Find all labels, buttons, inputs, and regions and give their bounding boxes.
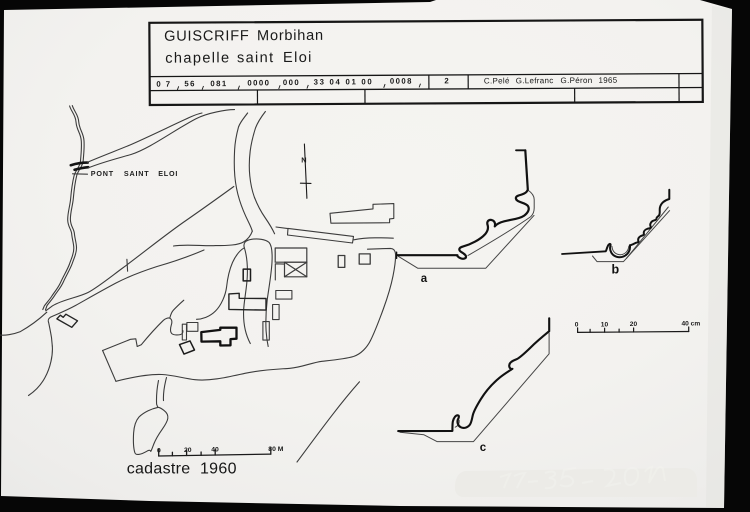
svg-text:40 cm: 40 cm	[682, 321, 701, 328]
svg-text:20: 20	[184, 447, 192, 454]
svg-text:ELOI: ELOI	[158, 169, 178, 178]
svg-text:33 04 01 00: 33 04 01 00	[314, 77, 374, 86]
svg-text:0: 0	[157, 447, 161, 454]
svg-text:40: 40	[211, 447, 219, 454]
svg-text:PONT: PONT	[91, 169, 114, 178]
svg-text:10: 10	[601, 321, 609, 328]
svg-text:0: 0	[575, 322, 579, 329]
svg-text:0000: 0000	[247, 78, 270, 87]
svg-text:20: 20	[630, 321, 638, 328]
svg-text:cadastre1960: cadastre1960	[127, 461, 237, 478]
svg-text:a: a	[421, 273, 428, 285]
svg-text:2: 2	[444, 76, 450, 85]
svg-text:80 M: 80 M	[268, 446, 283, 453]
svg-text:GUISCRIFFMorbihan: GUISCRIFFMorbihan	[164, 28, 324, 45]
svg-text:b: b	[612, 262, 620, 276]
svg-text:081: 081	[210, 79, 227, 88]
svg-text:chapellesaintEloi: chapellesaintEloi	[165, 50, 313, 67]
svg-text:000: 000	[283, 78, 300, 87]
svg-text:0008: 0008	[390, 77, 413, 86]
svg-text:56: 56	[184, 79, 196, 88]
svg-text:SAINT: SAINT	[124, 169, 150, 178]
svg-text:c: c	[480, 442, 487, 454]
svg-text:0 7: 0 7	[156, 80, 171, 89]
svg-text:C.PeléG.LefrancG.Péron1965: C.PeléG.LefrancG.Péron1965	[484, 76, 618, 86]
svg-text:N: N	[301, 156, 306, 165]
